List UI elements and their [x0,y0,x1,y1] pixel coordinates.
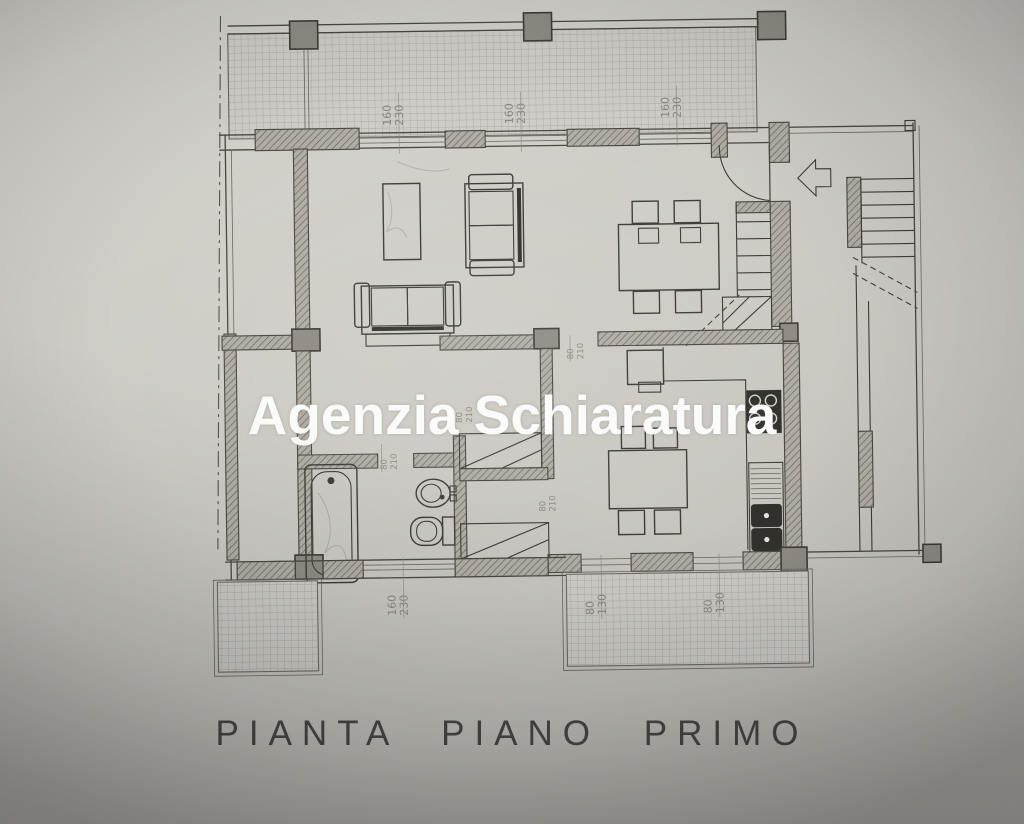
dining-chair [674,200,700,222]
kitchen-cabinet [627,350,663,384]
dining-chair [680,227,700,242]
wc-toilet [410,517,454,546]
wall-segment [783,343,802,549]
svg-text:210: 210 [390,453,400,469]
entrance-arrow-icon [798,160,831,196]
wall-segment [598,329,783,346]
dining-chair [675,290,701,312]
door-pier [769,122,790,162]
dining-chair [632,201,658,223]
stair-rail [858,431,873,507]
svg-text:230: 230 [671,97,684,118]
wall-segment [255,128,359,150]
wall-segment [567,128,639,146]
wall-segment [293,149,310,331]
pillar [295,555,323,579]
bidet [416,479,456,508]
pillar [534,328,559,348]
stair-wall [770,201,792,326]
svg-text:80: 80 [538,501,548,512]
dining-chair [638,228,658,243]
pillar [523,13,551,41]
floor-plan-photo: 160 230 160 230 160 230 160 230 80 130 8… [0,0,1024,824]
terrace-bottom-middle [562,569,813,670]
dining-chair [633,291,659,313]
dining-table [618,223,719,290]
svg-text:230: 230 [515,103,528,124]
dimension-label: 160 230 [386,595,411,616]
svg-text:80: 80 [566,348,576,359]
door-dimension-label: 80 210 [380,453,400,470]
dimension-label: 160 230 [659,97,684,118]
svg-text:130: 130 [714,592,727,613]
plan-caption: PIANTA PIANO PRIMO [216,714,809,754]
stair-rail [847,177,862,247]
pillar [290,21,318,49]
wall-segment [224,334,239,560]
pillar [923,544,941,562]
wall-segment [298,454,378,469]
dimension-label: 160 230 [381,105,406,126]
wall-segment [414,453,456,468]
wall-segment [323,560,363,579]
wall-segment [445,130,485,148]
pillar [757,11,785,39]
kitchen [440,325,807,576]
svg-text:230: 230 [393,105,406,126]
kitchen-chair [618,510,644,534]
wall-segment [237,561,295,580]
door-dimension-label: 80 210 [566,343,586,360]
sofa [465,174,524,276]
pillar [781,547,807,571]
window [363,564,455,570]
dining-area [618,200,720,313]
agency-watermark: Agenzia Schiaratura [248,383,777,447]
svg-text:80: 80 [380,459,390,470]
wall-segment [222,335,294,350]
pillar [292,329,320,351]
kitchen-table [609,450,688,509]
wall-segment [455,558,548,577]
south-wall [225,557,566,580]
stair-landing [736,201,770,212]
pencil-scribble [385,161,450,238]
wall-segment [453,436,467,576]
svg-text:230: 230 [398,595,411,616]
svg-text:210: 210 [576,343,586,359]
terrace-bottom-left [213,579,322,676]
wall-segment [631,553,693,572]
kitchen-chair [654,510,680,534]
closet [459,433,549,559]
exterior-stairs [847,176,921,551]
kitchen-sink [749,462,784,554]
living-room [353,160,526,346]
stair-cut-line [853,256,917,293]
stair-cut-line [853,272,917,309]
wall-segment [460,468,548,481]
dimension-label: 160 230 [503,103,528,124]
wall-segment [743,551,781,570]
west-wall [221,135,239,580]
door-dimension-label: 80 210 [538,495,558,512]
svg-text:210: 210 [548,495,558,511]
svg-text:130: 130 [596,594,609,615]
wall-segment [440,335,535,350]
